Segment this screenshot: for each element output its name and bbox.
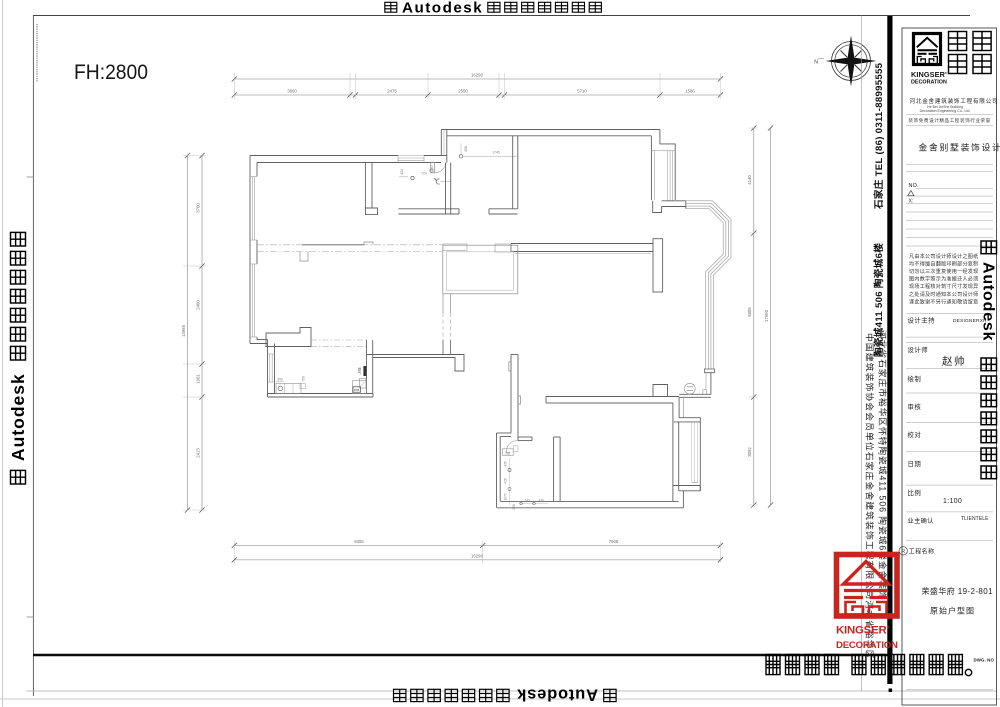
svg-text:Autodesk: Autodesk bbox=[516, 686, 598, 704]
svg-text:原始户型图: 原始户型图 bbox=[930, 605, 975, 615]
svg-text:DECORATION: DECORATION bbox=[911, 79, 947, 85]
svg-text:石家庄 TEL (86) 0311-88995555: 石家庄 TEL (86) 0311-88995555 bbox=[873, 62, 885, 210]
svg-text:1961: 1961 bbox=[195, 374, 200, 384]
svg-text:DWG. NO: DWG. NO bbox=[974, 657, 995, 662]
svg-text:426: 426 bbox=[504, 478, 508, 484]
svg-text:Autodesk: Autodesk bbox=[402, 0, 483, 16]
svg-text:2460: 2460 bbox=[195, 300, 200, 310]
svg-text:4140: 4140 bbox=[747, 175, 752, 185]
svg-text:3860: 3860 bbox=[287, 88, 297, 93]
svg-text:NO.: NO. bbox=[909, 183, 919, 189]
svg-text:谨此致谢不另行通知敬请留意: 谨此致谢不另行通知敬请留意 bbox=[909, 298, 978, 305]
svg-text:458: 458 bbox=[464, 146, 468, 152]
svg-text:7908: 7908 bbox=[609, 539, 619, 544]
svg-text:KINGSER': KINGSER' bbox=[911, 70, 947, 79]
svg-text:8356: 8356 bbox=[354, 539, 364, 544]
svg-text:现场工程核对筑寸尺寸发现异: 现场工程核对筑寸尺寸发现异 bbox=[909, 283, 978, 290]
svg-text:528: 528 bbox=[512, 504, 516, 510]
svg-text:TLIENTELE: TLIENTELE bbox=[961, 516, 989, 522]
svg-text:17990: 17990 bbox=[764, 309, 769, 322]
svg-text:均不得擅自翻版印刷部分复制: 均不得擅自翻版印刷部分复制 bbox=[909, 261, 978, 268]
svg-text:洗衣: 洗衣 bbox=[505, 451, 511, 455]
svg-text:R: R bbox=[901, 549, 905, 555]
svg-text:750: 750 bbox=[302, 376, 306, 382]
svg-text:1586: 1586 bbox=[685, 88, 695, 93]
svg-text:业主确认: 业主确认 bbox=[908, 517, 934, 525]
svg-text:之处请及时通知本公司设计师: 之处请及时通知本公司设计师 bbox=[909, 291, 978, 298]
svg-text:2475: 2475 bbox=[387, 88, 397, 93]
svg-text:工程名称: 工程名称 bbox=[909, 547, 935, 555]
svg-text:河北金舍建筑装饰工程有限公司: 河北金舍建筑装饰工程有限公司 bbox=[910, 97, 999, 105]
svg-text:13965: 13965 bbox=[181, 324, 186, 337]
svg-text:设计师: 设计师 bbox=[908, 345, 929, 354]
svg-text:装饰免费设计精品工程装饰行业荣誉: 装饰免费设计精品工程装饰行业荣誉 bbox=[909, 117, 991, 124]
svg-text:350: 350 bbox=[277, 378, 283, 382]
svg-text:比例: 比例 bbox=[908, 488, 922, 497]
svg-text:赵帅: 赵帅 bbox=[942, 355, 966, 368]
svg-text:16290: 16290 bbox=[471, 553, 484, 558]
svg-text:1070: 1070 bbox=[504, 493, 508, 500]
svg-text:1:100: 1:100 bbox=[943, 498, 962, 505]
svg-text:6605: 6605 bbox=[747, 307, 752, 317]
svg-text:日期: 日期 bbox=[908, 460, 922, 468]
svg-text:Autodesk: Autodesk bbox=[8, 373, 28, 461]
svg-text:DECORATION: DECORATION bbox=[836, 640, 898, 651]
svg-text:435: 435 bbox=[504, 461, 508, 467]
svg-text:凡由本公司设计师设计之图纸: 凡由本公司设计师设计之图纸 bbox=[909, 253, 978, 260]
svg-text:金舍别墅装饰设计: 金舍别墅装饰设计 bbox=[919, 141, 1000, 152]
svg-text:河北省石家庄市裕华区怀特陶瓷城411 506 陶瓷城6楼金舍: 河北省石家庄市裕华区怀特陶瓷城411 506 陶瓷城6楼金舍装饰 bbox=[878, 330, 889, 600]
svg-text:P05: P05 bbox=[354, 388, 360, 392]
svg-text:433: 433 bbox=[400, 169, 404, 175]
svg-text:绘制: 绘制 bbox=[908, 374, 922, 383]
svg-text:切勿以三次重复使用一经发现: 切勿以三次重复使用一经发现 bbox=[909, 268, 978, 275]
svg-text:5710: 5710 bbox=[577, 88, 587, 93]
svg-text:16290: 16290 bbox=[471, 72, 484, 77]
svg-text:校对: 校对 bbox=[908, 430, 922, 439]
svg-text:724: 724 bbox=[421, 172, 427, 176]
svg-text:设计主持: 设计主持 bbox=[908, 316, 936, 325]
svg-text:1745: 1745 bbox=[492, 151, 500, 155]
svg-text:KINGSER': KINGSER' bbox=[836, 625, 889, 637]
svg-text:N: N bbox=[814, 60, 818, 66]
svg-text:3092: 3092 bbox=[747, 447, 752, 457]
svg-text:2550: 2550 bbox=[458, 88, 468, 93]
svg-text:3700: 3700 bbox=[195, 203, 200, 213]
svg-text:X:: X: bbox=[909, 199, 914, 205]
svg-text:审核: 审核 bbox=[908, 402, 922, 411]
svg-text:FH:2800: FH:2800 bbox=[74, 61, 148, 84]
svg-text:Autodesk: Autodesk bbox=[980, 262, 997, 341]
svg-text:荣盛华府 19-2-801: 荣盛华府 19-2-801 bbox=[922, 586, 994, 596]
svg-text:2413: 2413 bbox=[195, 448, 200, 458]
svg-text:图内数字照示为准搬迁人必须: 图内数字照示为准搬迁人必须 bbox=[909, 276, 978, 283]
svg-text:Decoration Engineering Co., Lt: Decoration Engineering Co., Ltd. bbox=[920, 109, 971, 113]
svg-text:450: 450 bbox=[430, 165, 434, 171]
